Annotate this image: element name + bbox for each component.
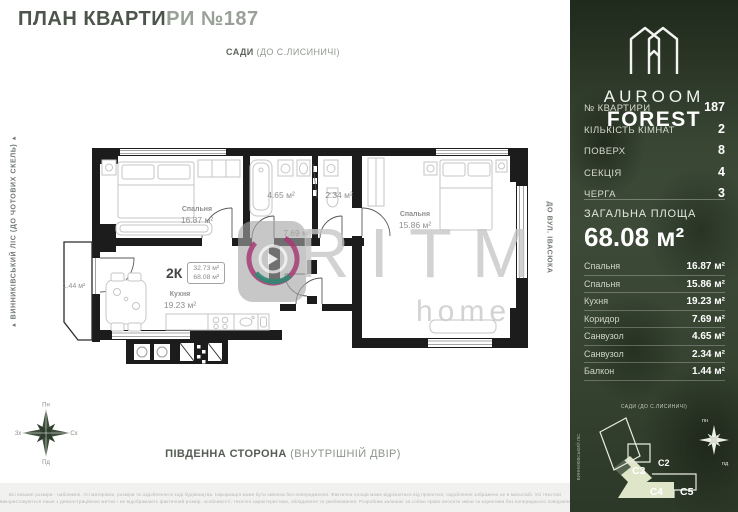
page-title-dark: ПЛАН КВАРТИ xyxy=(18,8,166,30)
info-row: ЧЕРГА3 xyxy=(584,186,725,200)
apartment-type: 2К xyxy=(166,265,182,281)
site-section-c2: C2 xyxy=(658,458,670,468)
apartment-info-list: № КВАРТИРИ187 КІЛЬКІСТЬ КІМНАТ2 ПОВЕРХ8 … xyxy=(584,100,725,208)
hob-icon xyxy=(208,314,234,330)
info-row: КІЛЬКІСТЬ КІМНАТ2 xyxy=(584,122,725,136)
info-row: ПОВЕРХ8 xyxy=(584,143,725,157)
room-row: Санвузол4.65 м² xyxy=(584,328,725,346)
compass-south: Пд xyxy=(42,460,50,466)
watermark-sub: home xyxy=(416,295,511,329)
tree-icon: ▲ xyxy=(12,319,18,328)
tree-icon: ▲ xyxy=(12,135,18,144)
room-label-bedroom1: Спальня 16.87 м² xyxy=(167,206,227,225)
siteplan-compass-north: пн xyxy=(702,418,708,424)
washer-icon xyxy=(278,160,293,176)
siteplan-compass-south: пд xyxy=(722,461,729,467)
room-area-list: Спальня16.87 м² Спальня15.86 м² Кухня19.… xyxy=(584,258,725,381)
site-section-c4: C4 xyxy=(650,487,663,498)
room-row: Спальня16.87 м² xyxy=(584,258,725,276)
compass-east: Сх xyxy=(70,431,77,437)
room-row: Коридор7.69 м² xyxy=(584,311,725,329)
disclaimer: Всі вказані розміри - наближені. Усі мат… xyxy=(0,483,570,512)
siteplan-side-label: ВИННИКІВСЬКИЙ ЛІС xyxy=(576,414,581,500)
apartment-summary: 2К 32.73 м² 68.08 м² xyxy=(166,262,225,284)
room-row: Спальня15.86 м² xyxy=(584,276,725,294)
auroom-logo-icon xyxy=(623,24,685,76)
room-label-kitchen: Кухня 19.23 м² xyxy=(150,291,210,310)
room-row: Балкон1.44 м² xyxy=(584,363,725,381)
site-section-c5: C5 xyxy=(680,486,694,498)
compass-north: Пн xyxy=(42,403,50,409)
orientation-label-north: САДИ (ДО С.ЛИСИНИЧІ) xyxy=(0,47,566,57)
orientation-label-west: ▲ ВИННИКІВСЬКИЙ ЛІС (ДО ЧОТОВИХ СКЕЛЬ) ▲ xyxy=(11,112,18,352)
kitchen-sink-icon xyxy=(234,314,258,330)
siteplan-compass-icon xyxy=(699,425,729,455)
info-row: № КВАРТИРИ187 xyxy=(584,100,725,114)
total-area-block: ЗАГАЛЬНА ПЛОЩА 68.08 м² xyxy=(584,199,725,253)
page-title-light: РИ №187 xyxy=(166,8,258,30)
dining-table-icon xyxy=(106,280,146,324)
room-row: Санвузол2.34 м² xyxy=(584,346,725,364)
info-row: СЕКЦІЯ4 xyxy=(584,165,725,179)
compass-rose: Пн Сх Пд Зх xyxy=(12,400,80,466)
compass-west: Зх xyxy=(15,431,22,437)
total-area-label: ЗАГАЛЬНА ПЛОЩА xyxy=(584,208,725,220)
room-label-bathroom: 4.65 м² xyxy=(251,190,311,201)
room-label-wc: 2.34 м² xyxy=(309,190,369,201)
total-area-value: 68.08 м² xyxy=(584,222,725,253)
site-section-c3: C3 xyxy=(632,465,646,477)
apartment-areas-box: 32.73 м² 68.08 м² xyxy=(187,262,225,284)
room-label-balcony: 1.44 м² xyxy=(44,283,104,292)
orientation-label-south: ПІВДЕННА СТОРОНА (ВНУТРІШНІЙ ДВІР) xyxy=(0,448,566,460)
watermark-brand: RITM xyxy=(299,213,550,293)
info-panel: AUROOM FOREST № КВАРТИРИ187 КІЛЬКІСТЬ КІ… xyxy=(570,0,738,512)
siteplan-block: САДИ (ДО С.ЛИСИНИЧІ) C2 C3 C4 C5 пн пд xyxy=(570,404,738,512)
siteplan-map: C2 C3 C4 C5 пн пд xyxy=(574,410,734,508)
page-title: ПЛАН КВАРТИРИ №187 xyxy=(18,8,259,31)
room-row: Кухня19.23 м² xyxy=(584,293,725,311)
apartment-plan-page: ПЛАН КВАРТИРИ №187 САДИ (ДО С.ЛИСИНИЧІ) … xyxy=(0,0,738,512)
counter-icon xyxy=(166,314,208,330)
watermark-ring-icon xyxy=(238,221,306,302)
